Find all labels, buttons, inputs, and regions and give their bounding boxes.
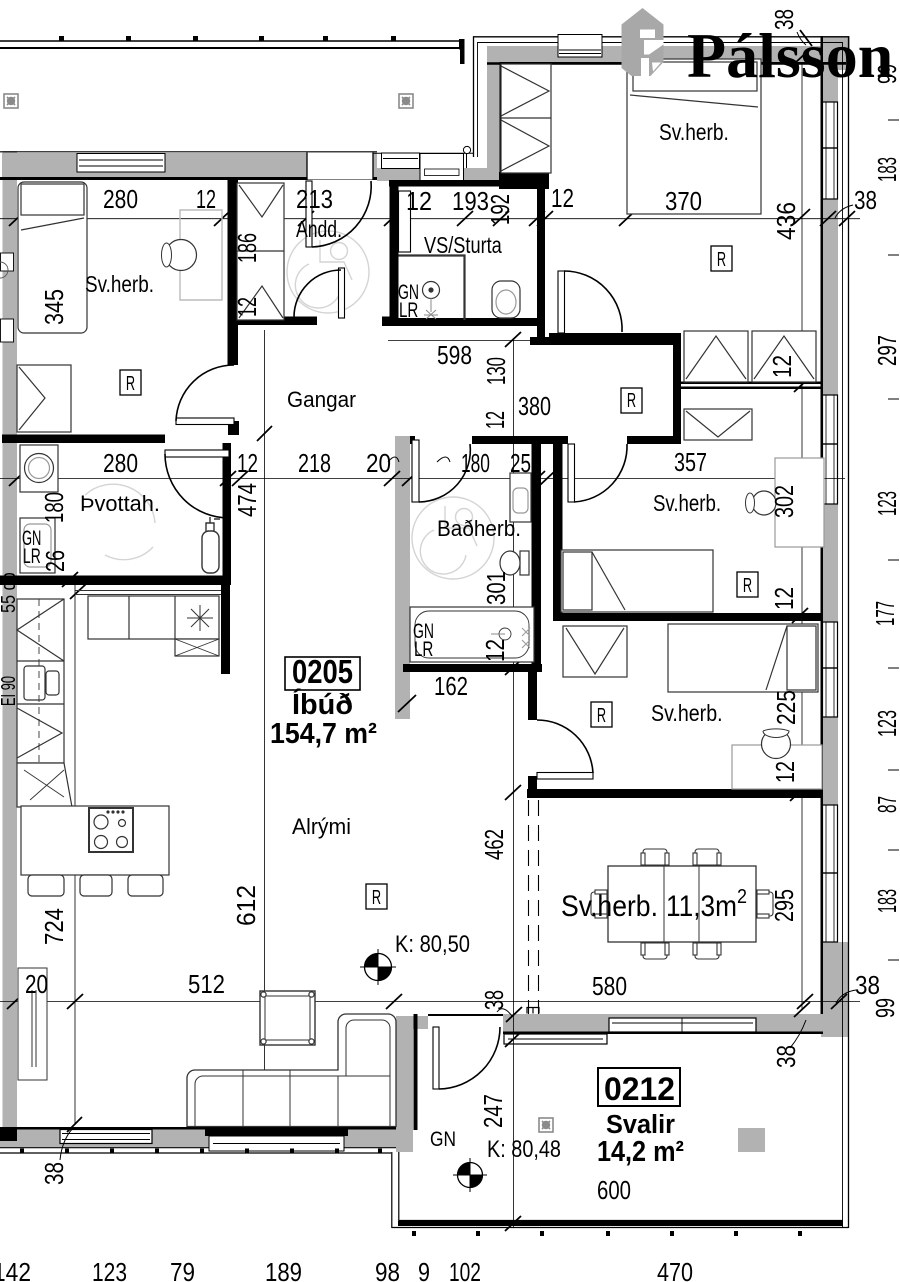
svg-text:295: 295 (769, 889, 798, 922)
svg-text:474: 474 (233, 483, 262, 517)
svg-text:Sv.herb.: Sv.herb. (653, 491, 721, 516)
svg-text:380: 380 (518, 391, 551, 420)
svg-text:12: 12 (770, 761, 799, 783)
svg-text:20: 20 (366, 450, 391, 479)
svg-text:180: 180 (461, 448, 490, 477)
svg-text:9: 9 (418, 1258, 430, 1282)
svg-text:Sv.herb.: Sv.herb. (651, 701, 723, 727)
svg-text:R: R (372, 886, 381, 909)
svg-text:0212: 0212 (604, 1071, 675, 1107)
svg-text:Sv.herb.: Sv.herb. (659, 120, 729, 145)
svg-text:38: 38 (480, 990, 509, 1010)
svg-text:98: 98 (375, 1259, 400, 1282)
svg-text:189: 189 (265, 1258, 302, 1282)
svg-text:Sv.herb.: Sv.herb. (85, 272, 154, 297)
svg-text:20: 20 (25, 970, 48, 999)
svg-text:38: 38 (40, 1162, 69, 1185)
svg-text:154,7 m²: 154,7 m² (270, 717, 377, 749)
svg-text:302: 302 (769, 485, 798, 518)
svg-text:130: 130 (481, 357, 511, 385)
svg-text:280: 280 (103, 186, 138, 215)
svg-text:186: 186 (233, 233, 262, 263)
svg-text:193: 193 (452, 187, 489, 216)
svg-text:38: 38 (854, 186, 877, 215)
svg-text:12: 12 (551, 184, 574, 213)
svg-text:512: 512 (188, 970, 225, 999)
svg-text:Baðherb.: Baðherb. (437, 516, 521, 541)
svg-text:12: 12 (768, 355, 797, 378)
svg-text:180: 180 (40, 492, 69, 523)
svg-text:GN: GN (430, 1129, 456, 1152)
svg-text:123: 123 (92, 1259, 127, 1282)
svg-text:183: 183 (874, 889, 900, 913)
svg-text:2: 2 (737, 886, 747, 908)
svg-text:462: 462 (480, 829, 509, 860)
svg-text:12: 12 (237, 448, 258, 478)
svg-text:436: 436 (773, 202, 802, 240)
svg-text:12: 12 (196, 185, 216, 214)
svg-text:612: 612 (232, 885, 261, 926)
svg-text:12: 12 (406, 188, 432, 216)
svg-text:297: 297 (873, 335, 900, 366)
svg-text:Þvottah.: Þvottah. (80, 491, 160, 516)
svg-text:162: 162 (434, 672, 468, 701)
svg-text:55 db: 55 db (0, 572, 19, 613)
svg-text:79: 79 (170, 1259, 195, 1282)
svg-text:99: 99 (873, 64, 900, 84)
svg-text:218: 218 (298, 448, 331, 477)
svg-text:177: 177 (872, 601, 900, 626)
svg-text:K: 80,50: K: 80,50 (395, 930, 470, 957)
svg-text:LR: LR (399, 298, 418, 322)
svg-text:R: R (743, 574, 752, 597)
svg-text:12: 12 (480, 411, 510, 429)
svg-text:Alrými: Alrými (292, 814, 351, 839)
svg-text:LR: LR (414, 637, 433, 661)
svg-text:99: 99 (871, 998, 900, 1018)
svg-text:Gangar: Gangar (287, 387, 356, 412)
svg-text:580: 580 (592, 973, 627, 1002)
svg-text:247: 247 (479, 1094, 508, 1128)
svg-text:R: R (597, 704, 606, 727)
svg-text:183: 183 (874, 157, 900, 182)
svg-text:12: 12 (233, 297, 262, 317)
svg-text:R: R (627, 389, 636, 412)
svg-text:R: R (717, 248, 726, 271)
svg-text:345: 345 (40, 289, 69, 325)
svg-text:370: 370 (665, 187, 702, 216)
svg-text:123: 123 (872, 710, 900, 737)
svg-text:Andd.: Andd. (296, 217, 342, 243)
svg-text:102: 102 (449, 1257, 481, 1282)
svg-text:38: 38 (772, 1045, 801, 1068)
svg-text:470: 470 (657, 1258, 693, 1282)
svg-text:Íbúð: Íbúð (292, 687, 353, 721)
svg-text:12: 12 (770, 587, 799, 610)
svg-text:142: 142 (0, 1259, 31, 1282)
svg-text:Sv.herb.: Sv.herb. (561, 890, 658, 924)
svg-text:280: 280 (103, 450, 138, 479)
svg-text:14,2 m²: 14,2 m² (597, 1134, 684, 1167)
svg-text:25: 25 (510, 448, 531, 478)
svg-text:724: 724 (40, 908, 69, 945)
svg-text:EI 90: EI 90 (0, 676, 20, 706)
svg-text:357: 357 (674, 447, 707, 476)
svg-text:LR: LR (23, 544, 41, 568)
svg-text:87: 87 (873, 796, 900, 813)
svg-text:26: 26 (40, 550, 69, 572)
svg-text:K: 80,48: K: 80,48 (487, 1135, 561, 1162)
svg-text:123: 123 (874, 491, 900, 516)
svg-text:11,3m: 11,3m (666, 888, 737, 922)
svg-text:VS/Sturta: VS/Sturta (424, 233, 502, 259)
svg-text:192: 192 (486, 194, 515, 225)
svg-text:225: 225 (773, 690, 802, 725)
svg-text:12: 12 (481, 639, 510, 662)
svg-text:301: 301 (482, 571, 511, 605)
svg-text:38: 38 (769, 9, 799, 30)
svg-text:38: 38 (855, 972, 880, 1001)
svg-text:R: R (126, 372, 135, 395)
svg-text:0205: 0205 (292, 655, 353, 691)
svg-text:600: 600 (597, 1176, 631, 1205)
svg-text:213: 213 (296, 185, 333, 214)
svg-text:598: 598 (437, 342, 472, 371)
